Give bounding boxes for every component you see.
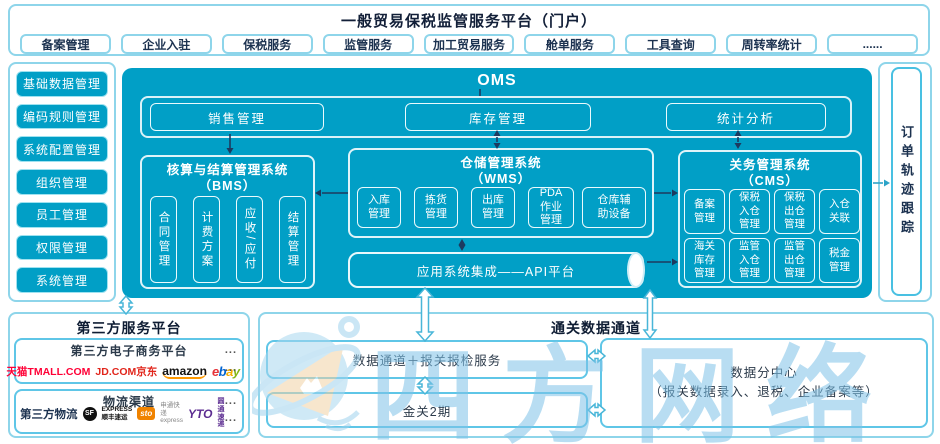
module-sales: 销售管理 [150,103,324,131]
portal-header: 一般贸易保税监管服务平台（门户） 备案管理 企业入驻 保税服务 监管服务 加工贸… [8,4,930,56]
sto-express-text: 申通快递express [160,402,183,424]
sidebar-item-organization[interactable]: 组织管理 [16,169,108,195]
api-platform-bar: 应用系统集成——API平台 [348,252,644,288]
cms-item-bonded-outbound: 保税出仓管理 [774,189,815,234]
wms-title: 仓储管理系统 [350,150,652,171]
ecommerce-more-dots: ... [225,344,237,356]
sidebar-item-permissions[interactable]: 权限管理 [16,235,108,261]
cms-item-superv-outbound: 监管出仓管理 [774,238,815,283]
cms-item-customs-stock: 海关库存管理 [684,238,725,283]
wms-subtitle: （WMS） [350,171,652,187]
portal-tab-bar: 备案管理 企业入驻 保税服务 监管服务 加工贸易服务 舱单服务 工具查询 周转率… [20,34,918,54]
logistics-more-dots: ... [225,395,237,407]
wms-item-pda: PDA作业管理 [528,187,574,228]
bms-item-ar-ap: 应收/应付 [236,196,263,283]
ecommerce-logo-row: 天猫TMALL.COM JD.COM京东 amazon ebay [20,364,226,379]
third-party-title: 第三方服务平台 [10,314,248,338]
tab-more[interactable]: ...... [827,34,918,54]
sf-express-text: EXPRESS顺丰速运 [102,406,133,421]
data-channel-box: 数据通道＋报关报检服务 [266,340,588,379]
bms-item-billing: 计费方案 [193,196,220,283]
module-inventory: 库存管理 [405,103,591,131]
tab-turnover-stats[interactable]: 周转率统计 [726,34,817,54]
cms-title: 关务管理系统 [680,152,860,173]
sidebar-item-coding-rules[interactable]: 编码规则管理 [16,104,108,130]
admin-sidebar: 基础数据管理 编码规则管理 系统配置管理 组织管理 员工管理 权限管理 系统管理 [8,62,116,302]
sidebar-item-system-config[interactable]: 系统配置管理 [16,136,108,162]
logistics-box: 物流渠道 ... 第三方物流 SF EXPRESS顺丰速运 sto 申通快递ex… [14,389,244,434]
tab-record-management[interactable]: 备案管理 [20,34,111,54]
sidebar-item-staff[interactable]: 员工管理 [16,202,108,228]
tab-bonded-service[interactable]: 保税服务 [222,34,313,54]
ecommerce-title: 第三方电子商务平台 [16,340,242,359]
order-tracking-label: 订单轨迹跟踪 [891,67,922,296]
wms-item-picking: 拣货管理 [414,187,458,228]
bms-subtitle: （BMS） [142,178,313,194]
bms-item-contract: 合同管理 [150,196,177,283]
sf-express-icon: SF [83,407,97,421]
tab-supervision-service[interactable]: 监管服务 [323,34,414,54]
data-subcenter-text: 数据分中心 （报关数据录入、退税、企业备案等） [649,364,879,402]
bms-title: 核算与结算管理系统 [142,157,313,178]
sto-express-icon: sto [137,407,155,420]
ecommerce-box: 第三方电子商务平台 ... 天猫TMALL.COM JD.COM京东 amazo… [14,338,244,384]
third-party-logistics-label: 第三方物流 [20,406,78,422]
tab-enterprise-onboard[interactable]: 企业入驻 [121,34,212,54]
cms-item-superv-inbound: 监管入仓管理 [729,238,770,283]
sidebar-item-system[interactable]: 系统管理 [16,267,108,293]
logistics-logo-more-dots: ... [225,412,237,424]
data-subcenter-box: 数据分中心 （报关数据录入、退税、企业备案等） [600,338,928,428]
module-statistics: 统计分析 [666,103,826,131]
ecommerce-logo-more-dots: ... [225,362,237,374]
oms-title: OMS [122,68,872,90]
tab-processing-trade[interactable]: 加工贸易服务 [424,34,515,54]
wms-item-aux-equipment: 仓库辅助设备 [582,187,646,228]
jd-logo: JD.COM京东 [95,364,157,379]
bms-item-settlement: 结算管理 [279,196,306,283]
cms-subtitle: （CMS） [680,173,860,189]
logistics-logo-row: 第三方物流 SF EXPRESS顺丰速运 sto 申通快递express YTO… [20,398,226,429]
wms-item-outbound: 出库管理 [471,187,515,228]
portal-architecture-diagram: 一般贸易保税监管服务平台（门户） 备案管理 企业入驻 保税服务 监管服务 加工贸… [0,0,940,444]
page-title: 一般贸易保税监管服务平台（门户） [10,6,928,31]
cms-item-record: 备案管理 [684,189,725,234]
cms-item-bonded-inbound: 保税入仓管理 [729,189,770,234]
wms-item-inbound: 入库管理 [357,187,401,228]
cms-item-warehouse-link: 入仓关联 [819,189,860,234]
customs-panel-title: 通关数据通道 [260,314,932,338]
api-platform-cylinder-cap [627,252,645,288]
amazon-logo: amazon [162,365,207,379]
sidebar-item-base-data[interactable]: 基础数据管理 [16,71,108,97]
tmall-logo: 天猫TMALL.COM [6,364,90,379]
tab-manifest-service[interactable]: 舱单服务 [524,34,615,54]
cms-item-tax: 税金管理 [819,238,860,283]
tab-tool-query[interactable]: 工具查询 [625,34,716,54]
yto-express-icon: YTO [188,407,212,421]
golden-gate-phase2-box: 金关2期 [266,392,588,428]
